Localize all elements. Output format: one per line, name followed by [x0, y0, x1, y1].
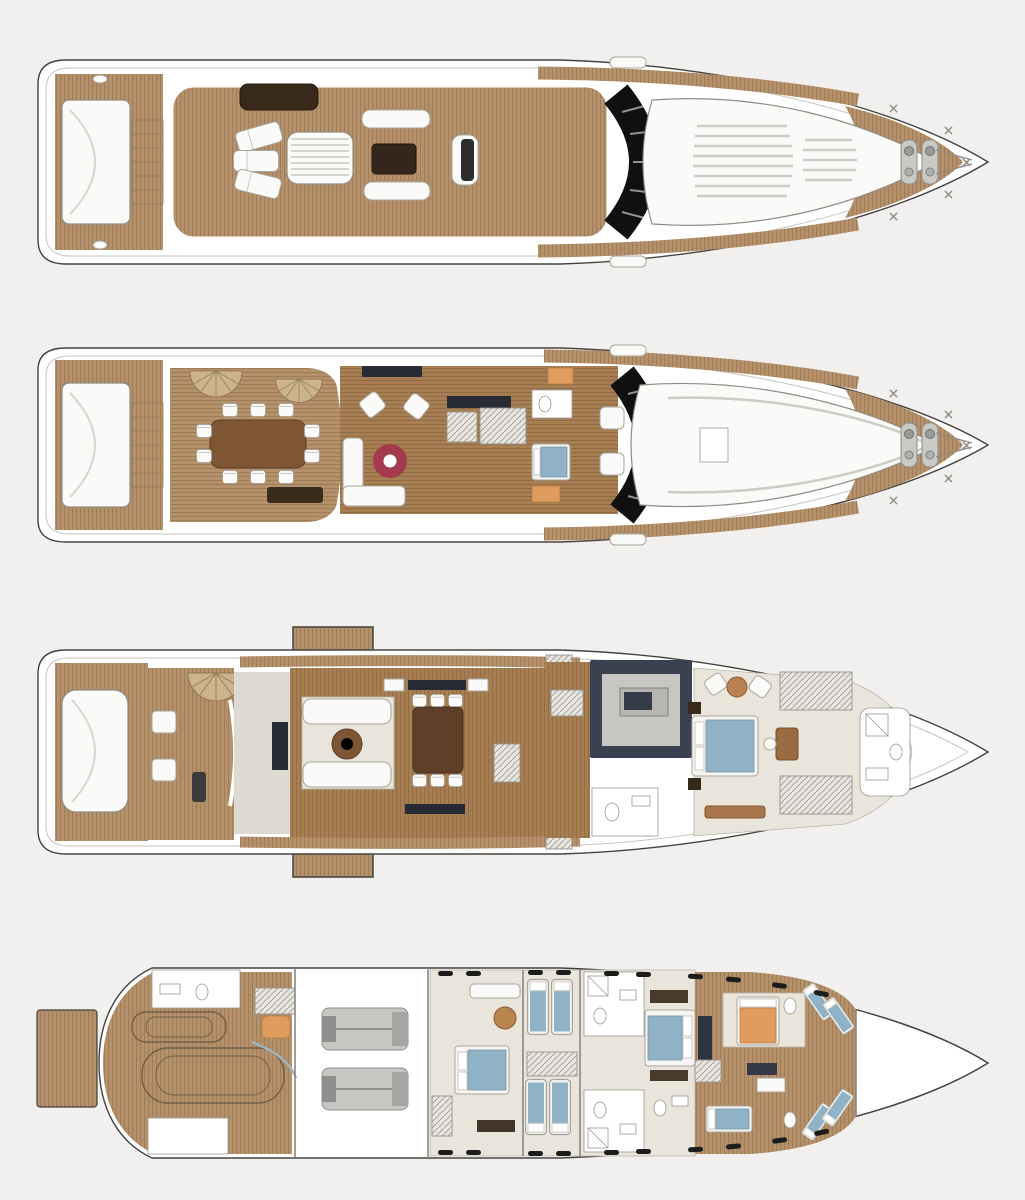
- foredeck-hatch: [700, 428, 728, 462]
- salon: [234, 668, 572, 838]
- dining-sideboard-bottom: [405, 804, 465, 814]
- guest-rug: [494, 1007, 516, 1029]
- stern-platform-bridge: [55, 360, 163, 530]
- jacuzzi: [287, 132, 353, 184]
- bridge-deck-plan: [38, 345, 988, 545]
- stairs-main: [480, 408, 526, 444]
- fold-out-balcony-port: [293, 627, 373, 652]
- aft-deck-hatch: [267, 487, 323, 503]
- owner-stateroom: [688, 668, 912, 836]
- crew-wc-bottom: [784, 1112, 796, 1128]
- cockpit-table-2: [152, 759, 176, 781]
- vip-wardrobe-top: [650, 990, 688, 1003]
- sun-loungers: [234, 121, 284, 200]
- nightstand-2: [688, 778, 701, 790]
- guest-bathroom-starboard: [584, 1090, 644, 1152]
- guest-wardrobe: [432, 1096, 452, 1136]
- stairs-foyer: [494, 744, 520, 782]
- helm-chair-starboard: [600, 453, 624, 475]
- aft-cockpit-main: [148, 668, 244, 840]
- round-rug-center: [384, 455, 397, 468]
- crew-stairs: [695, 1060, 721, 1082]
- nightstand-1: [688, 702, 701, 714]
- wing-station-top: [610, 57, 646, 68]
- formal-dining: [413, 694, 463, 786]
- flybridge-settee-bottom: [364, 182, 430, 200]
- owner-bed: [692, 716, 758, 776]
- crew-wc-top: [784, 998, 796, 1014]
- flybridge-table: [372, 144, 416, 174]
- helm-chair-port: [600, 407, 624, 429]
- owner-bathroom: [860, 708, 910, 796]
- windlass-bridge-starboard: [922, 423, 938, 467]
- garage-toilet: [196, 984, 208, 1000]
- guest-accommodation: [430, 970, 695, 1156]
- jacuzzi-cover-louvers: [291, 139, 349, 175]
- guest-bench: [477, 1120, 515, 1132]
- sun-lounger-2: [234, 151, 279, 172]
- corridor-stairs: [551, 690, 583, 716]
- crew-quarters: [695, 972, 856, 1154]
- beach-club-stairs: [255, 988, 295, 1014]
- sky-lounge: [340, 366, 618, 514]
- deck-plan-canvas: [0, 0, 1025, 1200]
- crew-settee-bottom: [532, 486, 560, 502]
- salon-console-1: [384, 679, 404, 691]
- yacht-deck-plans: [0, 0, 1025, 1200]
- salon-console-2: [468, 679, 488, 691]
- engine-starboard: [322, 1068, 408, 1110]
- sink-main: [632, 796, 650, 806]
- owner-ottoman: [727, 677, 747, 697]
- engine-port: [322, 1008, 408, 1050]
- swim-platform: [37, 1010, 97, 1107]
- beach-club-garage: [103, 970, 296, 1154]
- crew-single-cabin: [706, 1106, 752, 1132]
- stairs-down-1: [447, 412, 477, 442]
- wing-station-bottom: [610, 256, 646, 267]
- windlass-bridge-port: [901, 423, 917, 467]
- galley-corridor: [545, 662, 590, 838]
- salon-sofa-starboard: [303, 762, 391, 787]
- stern-platform-main: [55, 663, 148, 841]
- flybridge-bar: [452, 135, 478, 185]
- salon-sofa-port: [303, 699, 391, 724]
- day-head-main: [592, 788, 658, 836]
- vip-wardrobe-bottom: [650, 1070, 688, 1081]
- sun-deck-plan: [38, 57, 988, 267]
- stern-hatch-top: [93, 75, 107, 83]
- stern-hatch-bottom: [93, 241, 107, 249]
- wardrobe-top: [780, 672, 852, 710]
- beach-club-chaise: [262, 1016, 290, 1038]
- aft-deck-bridge: [170, 368, 344, 522]
- wardrobe-bottom: [780, 776, 852, 814]
- dining-table-bridge: [210, 420, 306, 468]
- garage-locker: [148, 1118, 228, 1154]
- owner-bench: [705, 806, 765, 818]
- owner-desk: [776, 728, 798, 760]
- wing-station-top-bridge: [610, 345, 646, 356]
- dining-table-main: [413, 707, 463, 773]
- stern-platform: [55, 74, 163, 250]
- day-head-bridge: [532, 390, 572, 418]
- guest-sofa: [470, 984, 520, 998]
- flybridge: [172, 84, 608, 238]
- anchor-windlass-starboard: [922, 140, 938, 184]
- galley-island-counter: [624, 692, 652, 710]
- anchor-windlass-port: [901, 140, 917, 184]
- fold-out-balcony-starboard: [293, 852, 373, 877]
- flybridge-settee-top: [362, 110, 430, 128]
- skylounge-tv-cabinet: [362, 366, 422, 377]
- salon-tv-cabinet: [272, 722, 288, 770]
- dining-sideboard-top: [408, 680, 466, 690]
- toilet-main: [605, 803, 619, 821]
- cockpit-table-1: [152, 711, 176, 733]
- skylounge-sideboard: [447, 396, 511, 408]
- guest-bathroom-port: [584, 972, 644, 1036]
- laundry-unit: [698, 1016, 712, 1060]
- crew-settee-top: [548, 368, 573, 384]
- crew-mess-counter: [747, 1063, 777, 1075]
- wing-station-bottom-bridge: [610, 534, 646, 545]
- owner-desk-stool: [764, 738, 776, 750]
- guest-lobby-stairs: [527, 1052, 577, 1076]
- lower-deck-plan: [37, 968, 988, 1158]
- crew-mess-table: [757, 1078, 785, 1092]
- flybridge-sunpad-dark: [240, 84, 318, 110]
- toilet-bridge: [539, 396, 551, 412]
- aft-door: [192, 772, 206, 802]
- main-deck-plan: [38, 627, 988, 877]
- salon-coffee-table-center: [341, 738, 353, 750]
